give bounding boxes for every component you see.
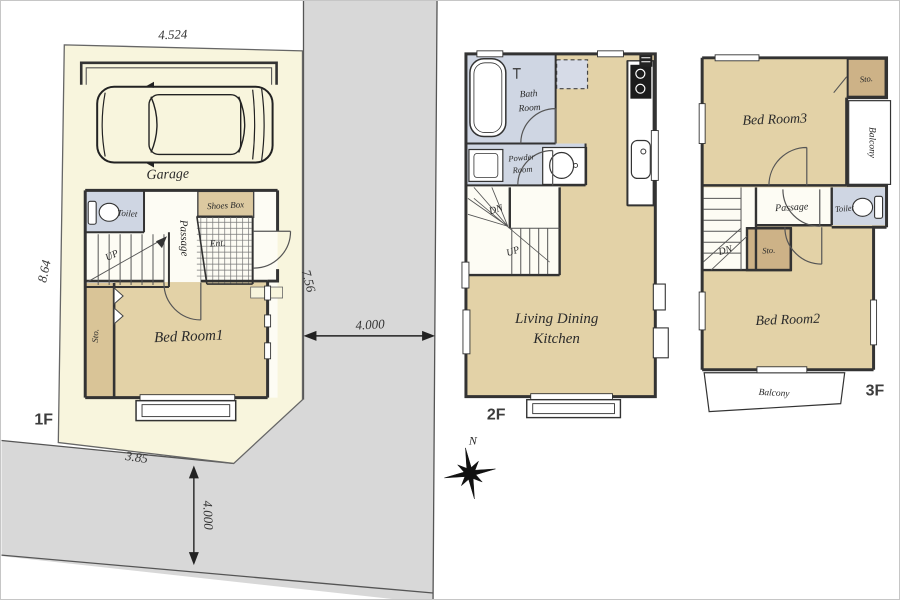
shoes-box-label: Shoes Box [207, 199, 245, 211]
stair-hall-floor [466, 185, 560, 275]
bath-label-line1: Bath [519, 89, 538, 100]
storage-mid-label: Sto. [762, 245, 776, 256]
floorplan-canvas: 4.524 8.64 7.56 3.85 4.000 4.000 1F [0, 0, 900, 600]
kitchen-sink-icon [631, 141, 650, 179]
storage-top-label: Sto. [859, 73, 873, 84]
floor-label-3f: 3F [866, 383, 885, 400]
passage-label-3f: Passage [774, 201, 809, 214]
kitchen-counter [627, 61, 653, 206]
basin-icon [543, 148, 587, 185]
ldk-label-line1: Living Dining [514, 311, 599, 327]
compass: N [444, 434, 495, 499]
dim-road-right: 4.000 [355, 316, 385, 333]
floor-label-2f: 2F [487, 407, 506, 424]
toilet-label-3f: Toilet [835, 202, 855, 214]
entrance-label: Ent. [209, 239, 226, 250]
floor-3f: DN Bed Room3 Sto. Balcony Passage Toilet… [699, 55, 890, 412]
bedroom3-label: Bed Room3 [742, 111, 807, 128]
compass-rose-icon [444, 448, 495, 499]
balcony-bottom-label: Balcony [758, 388, 790, 400]
washing-machine-icon [469, 150, 503, 182]
garage-label: Garage [146, 167, 189, 183]
dim-top: 4.524 [158, 26, 188, 42]
bathtub-icon [470, 59, 506, 137]
bedroom2-label: Bed Room2 [755, 312, 820, 329]
balcony-right-label: Balcony [867, 127, 877, 159]
bedroom1-label: Bed Room1 [154, 328, 224, 346]
ldk-label-line2: Kitchen [532, 331, 579, 347]
house-1f: UP Toilet Shoes Box Ent. Passage Bed Roo… [85, 190, 290, 420]
powder-label-line2: Room [511, 164, 533, 176]
floor-label-1f: 1F [34, 412, 53, 429]
toilet-label-1f: Toilet [117, 208, 138, 219]
dim-road-bottom: 4.000 [200, 500, 216, 530]
north-label: N [468, 434, 478, 448]
dim-left: 8.64 [34, 258, 53, 284]
toilet-fixture-icon-3f [853, 196, 883, 218]
hatch-square [557, 60, 588, 89]
bath-label-line2: Room [517, 103, 541, 115]
storage-label-1f: Sto. [90, 329, 100, 343]
floor-2f: DN UP Bath Room Powder Room Living Dinin… [462, 51, 668, 424]
vent-box [639, 54, 652, 67]
passage-label-1f: Passage [177, 219, 190, 257]
